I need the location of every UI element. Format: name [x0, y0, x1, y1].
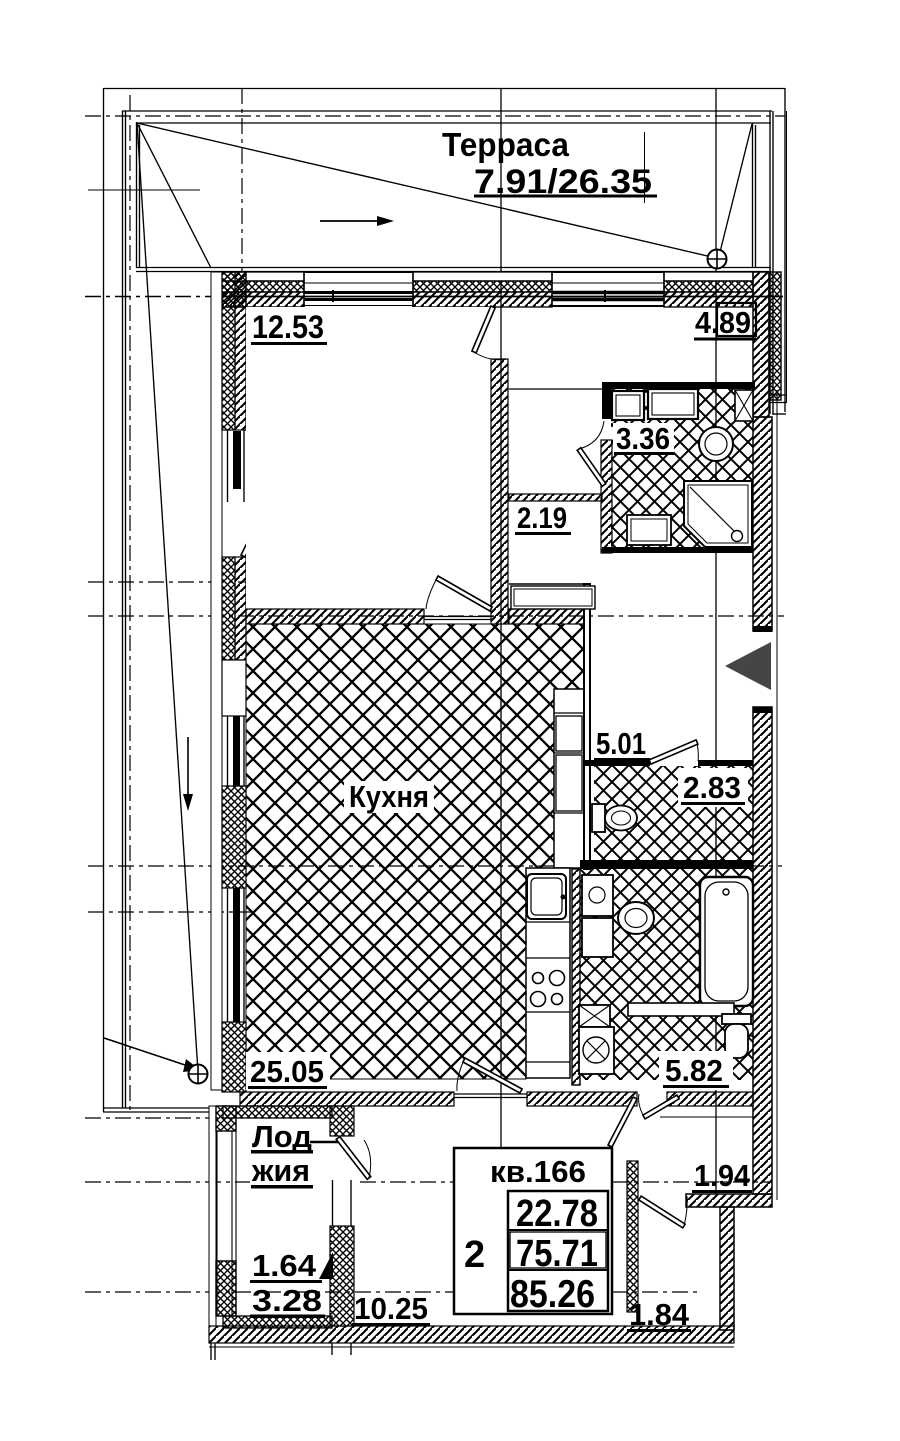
svg-text:жия: жия: [251, 1153, 310, 1188]
svg-text:12.53: 12.53: [252, 309, 324, 345]
svg-text:2: 2: [464, 1234, 485, 1276]
svg-text:75.71: 75.71: [516, 1233, 598, 1275]
svg-text:1.64: 1.64: [252, 1248, 317, 1283]
svg-text:22.78: 22.78: [516, 1193, 598, 1235]
svg-text:Кухня: Кухня: [349, 779, 429, 814]
svg-text:10.25: 10.25: [354, 1291, 428, 1326]
svg-text:5.01: 5.01: [596, 726, 646, 761]
svg-text:Лод: Лод: [252, 1119, 312, 1154]
svg-text:4.89: 4.89: [695, 305, 751, 340]
svg-text:2.83: 2.83: [683, 770, 741, 805]
svg-text:кв.166: кв.166: [490, 1154, 586, 1189]
svg-text:5.82: 5.82: [665, 1053, 723, 1088]
svg-text:1.94: 1.94: [694, 1158, 751, 1193]
svg-text:3.36: 3.36: [616, 421, 670, 456]
svg-text:3.28: 3.28: [252, 1283, 322, 1318]
svg-text:25.05: 25.05: [250, 1054, 324, 1089]
svg-text:85.26: 85.26: [510, 1273, 595, 1316]
svg-text:2.19: 2.19: [517, 502, 567, 535]
svg-text:Терраса: Терраса: [442, 126, 570, 163]
